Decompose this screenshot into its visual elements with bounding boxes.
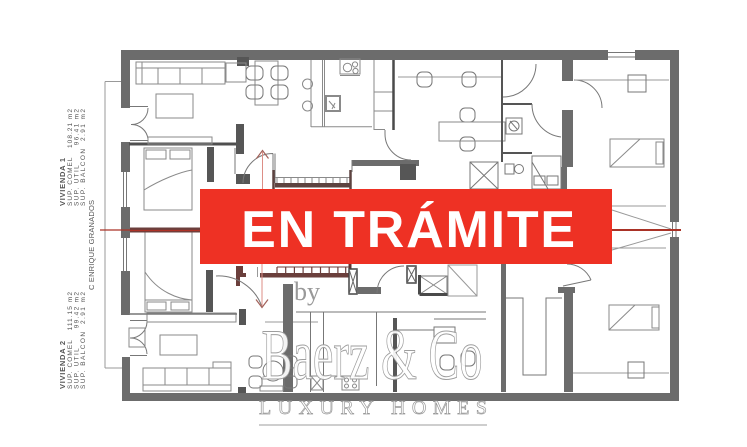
svg-text:Baerz & Co: Baerz & Co <box>262 315 483 395</box>
svg-text:EN TRÁMITE: EN TRÁMITE <box>241 201 577 259</box>
svg-text:SUP. BALCON 2.91 m2: SUP. BALCON 2.91 m2 <box>80 292 87 389</box>
svg-text:by: by <box>294 277 320 306</box>
svg-text:VIVIENDA 1: VIVIENDA 1 <box>58 158 67 206</box>
svg-text:SUP. BALCON 2.91 m2: SUP. BALCON 2.91 m2 <box>80 109 87 206</box>
svg-text:VIVIENDA 2: VIVIENDA 2 <box>58 341 67 389</box>
svg-text:C ENRIQUE GRANADOS: C ENRIQUE GRANADOS <box>87 200 96 290</box>
